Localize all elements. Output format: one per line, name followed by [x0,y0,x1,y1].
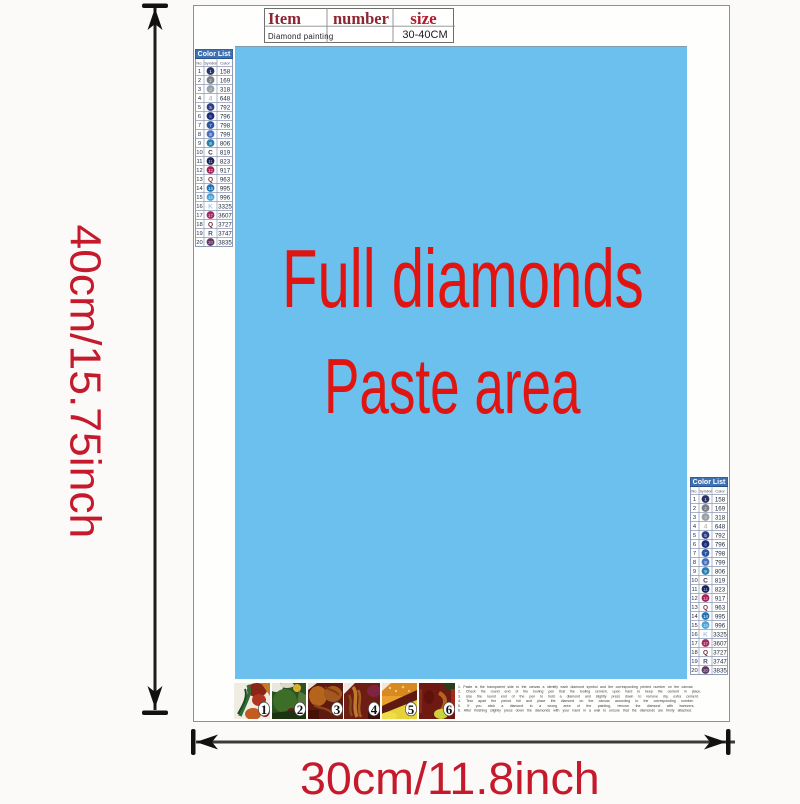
svg-text:No.: No. [691,489,697,494]
svg-text:17: 17 [703,641,708,646]
svg-text:C: C [703,577,708,584]
svg-text:4: 4 [209,95,213,102]
svg-text:R: R [208,230,213,237]
svg-text:Color: Color [220,61,230,66]
svg-text:14: 14 [703,614,708,619]
svg-text:14: 14 [691,614,698,620]
svg-text:11: 11 [703,587,708,592]
svg-text:16: 16 [691,632,697,638]
svg-text:806: 806 [715,568,726,575]
svg-text:15: 15 [691,623,697,629]
svg-text:3: 3 [334,702,341,717]
svg-text:20: 20 [703,668,708,673]
svg-text:11: 11 [196,159,202,165]
svg-text:995: 995 [220,185,231,192]
svg-text:2: 2 [297,702,304,717]
svg-text:2: 2 [198,78,201,84]
svg-text:6: 6 [693,542,696,548]
svg-text:14: 14 [196,186,203,192]
svg-text:12: 12 [703,596,708,601]
svg-text:K: K [208,203,213,210]
svg-text:14: 14 [208,186,213,191]
svg-text:963: 963 [715,604,726,611]
svg-text:12: 12 [208,168,213,173]
svg-text:6: 6 [446,702,453,717]
svg-text:Q: Q [208,176,213,183]
svg-text:1: 1 [261,702,268,717]
svg-text:18: 18 [196,222,202,228]
svg-text:3607: 3607 [713,640,727,647]
svg-text:3607: 3607 [218,212,232,219]
svg-text:318: 318 [220,86,231,93]
svg-text:11: 11 [691,587,697,593]
svg-text:5: 5 [693,533,696,539]
svg-text:12: 12 [691,596,697,602]
svg-text:16: 16 [196,204,202,210]
svg-text:996: 996 [220,194,231,201]
svg-text:3325: 3325 [713,631,727,638]
svg-text:C: C [208,149,213,156]
svg-text:R: R [703,658,708,665]
svg-text:169: 169 [220,77,231,84]
svg-text:792: 792 [220,104,231,111]
svg-text:3835: 3835 [713,667,727,674]
svg-text:Color: Color [715,489,725,494]
svg-text:963: 963 [220,176,231,183]
svg-text:799: 799 [220,131,231,138]
svg-text:4: 4 [371,702,378,717]
svg-text:3747: 3747 [218,230,232,237]
svg-text:3325: 3325 [218,203,232,210]
svg-text:819: 819 [715,577,726,584]
svg-text:11: 11 [208,159,213,164]
svg-text:18: 18 [691,650,697,656]
svg-text:Q: Q [703,649,708,656]
svg-text:Color List: Color List [198,51,231,58]
svg-text:No.: No. [196,61,202,66]
svg-text:823: 823 [220,158,231,165]
svg-text:3835: 3835 [218,239,232,246]
svg-text:158: 158 [715,496,726,503]
svg-text:648: 648 [220,95,231,102]
svg-text:17: 17 [208,213,213,218]
svg-text:4: 4 [704,523,708,530]
svg-text:7: 7 [198,123,201,129]
svg-text:9: 9 [693,569,696,575]
svg-text:796: 796 [715,541,726,548]
svg-text:Q: Q [208,221,213,228]
svg-text:3727: 3727 [713,649,727,656]
svg-text:917: 917 [715,595,726,602]
svg-text:5: 5 [198,105,201,111]
svg-text:819: 819 [220,149,231,156]
svg-text:917: 917 [220,167,231,174]
svg-text:19: 19 [691,659,697,665]
svg-text:1: 1 [198,69,201,75]
svg-text:20: 20 [691,668,697,674]
svg-text:169: 169 [715,505,726,512]
svg-text:Q: Q [703,604,708,611]
svg-text:792: 792 [715,532,726,539]
svg-text:318: 318 [715,514,726,521]
svg-text:7: 7 [693,551,696,557]
svg-text:995: 995 [715,613,726,620]
svg-text:9: 9 [198,141,201,147]
svg-text:15: 15 [703,623,708,628]
svg-text:Symbol: Symbol [205,62,217,66]
svg-text:5: 5 [408,702,415,717]
svg-text:648: 648 [715,523,726,530]
svg-text:8: 8 [198,132,201,138]
svg-text:10: 10 [196,150,202,156]
svg-text:17: 17 [196,213,202,219]
svg-text:806: 806 [220,140,231,147]
svg-text:158: 158 [220,68,231,75]
svg-text:1: 1 [693,497,696,503]
svg-text:20: 20 [196,240,202,246]
svg-text:996: 996 [715,622,726,629]
svg-text:10: 10 [691,578,697,584]
svg-text:12: 12 [196,168,202,174]
svg-text:13: 13 [196,177,202,183]
svg-text:2: 2 [693,506,696,512]
svg-text:20: 20 [208,240,213,245]
svg-text:799: 799 [715,559,726,566]
svg-text:798: 798 [220,122,231,129]
svg-text:19: 19 [196,231,202,237]
svg-text:3727: 3727 [218,221,232,228]
svg-text:3747: 3747 [713,658,727,665]
svg-text:798: 798 [715,550,726,557]
svg-text:796: 796 [220,113,231,120]
svg-text:K: K [703,631,708,638]
svg-text:15: 15 [196,195,202,201]
svg-text:6: 6 [198,114,201,120]
svg-text:3: 3 [198,87,201,93]
svg-text:Symbol: Symbol [700,490,712,494]
svg-text:823: 823 [715,586,726,593]
svg-text:8: 8 [693,560,696,566]
svg-text:Color List: Color List [693,479,726,486]
svg-text:15: 15 [208,195,213,200]
svg-text:17: 17 [691,641,697,647]
svg-text:3: 3 [693,515,696,521]
svg-text:13: 13 [691,605,697,611]
